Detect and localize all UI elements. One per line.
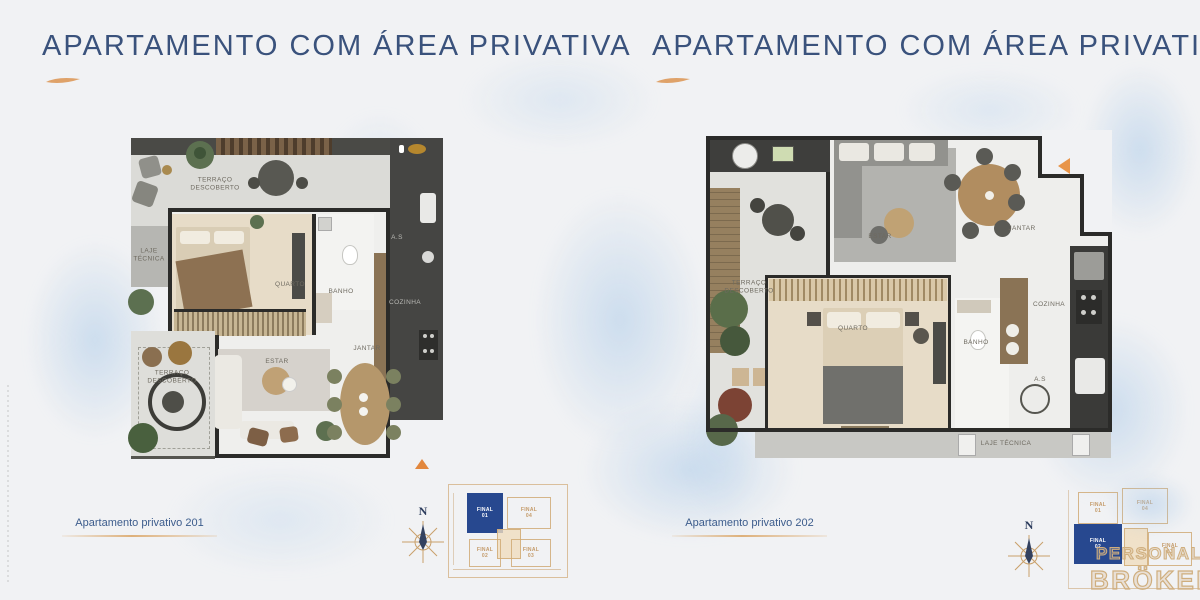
dining-chair [976,148,993,165]
fridge [1074,252,1104,280]
title-swoosh-icon [44,76,82,85]
sink [422,251,434,263]
keyplan-unit-label: FINAL 01 [467,507,503,520]
dining-chair [944,174,961,191]
brochure-page: APARTAMENTO COM ÁREA PRIVATIVA APARTAMEN… [0,0,1200,600]
room-label-terraco-top: TERRAÇO DESCOBERTO [190,177,239,194]
wall [168,208,390,212]
washer [732,143,758,169]
vanity [316,293,332,323]
dining-chair [327,397,342,412]
floorplan-202: ESTAR JANTAR TERRAÇO DESCOBERTO QUARTO B… [706,130,1112,476]
room-label-as: A.S [1034,376,1046,384]
hanging-chair-seat [162,391,184,413]
pillow [214,231,244,244]
wall [706,136,710,432]
keyplan-unit-label: FINAL 02 [470,547,500,560]
room-label-terraco-bottom: TERRAÇO DESCOBERTO [147,370,196,387]
burner [430,334,434,338]
keyplan-left: FINAL 01 FINAL 04 FINAL 02 FINAL 03 [448,484,568,578]
notch [1042,130,1112,174]
terrace-chair [750,198,765,213]
plan-marker-arrow [1058,158,1070,174]
plant [194,147,206,159]
burner [1091,295,1096,300]
oven [1075,358,1105,394]
keyplan-street-line [453,493,454,565]
door-mat [732,368,749,386]
nightstand [807,312,821,326]
dining-chair [962,222,979,239]
logo-line-broker: BRÖKER [1090,565,1200,596]
compass-north-label: N [400,504,446,519]
dining-chair [386,397,401,412]
keyplan-unit-final02: FINAL 02 [469,539,501,567]
wall [710,136,1042,140]
terrace-chair [790,226,805,241]
burner [1081,310,1086,315]
stove [1076,290,1102,324]
dining-table [340,363,390,445]
caption-underline [672,535,827,537]
stairs [216,138,332,155]
plant [720,326,750,356]
watercolor-blob [1090,462,1200,546]
wall-frame [772,146,794,162]
burner [1091,310,1096,315]
pouf [142,347,162,367]
plant [128,423,158,453]
compass-left: N [400,504,446,570]
fridge [420,193,436,223]
edge-watermark [7,382,9,582]
stove [419,330,438,360]
burner [430,349,434,353]
keyplan-street-line [453,569,561,570]
dining-chair [1008,194,1025,211]
room-label-jantar: JANTAR [1008,225,1035,233]
cushion [874,143,904,161]
plate [985,191,994,200]
compass-rose-icon [400,519,446,565]
room-label-cozinha: COZINHA [1033,301,1065,309]
pillow [180,231,210,244]
room-label-cozinha: COZINHA [389,299,421,307]
page-title-right: APARTAMENTO COM ÁREA PRIVATIVA [652,30,1200,63]
service-wall [710,138,830,172]
terrace-edge [131,456,215,459]
pillow [866,312,900,328]
bed-blanket [823,366,903,424]
room-label-laje: LAJE TÉCNICA [133,248,164,265]
personal-broker-logo: PERSONAL BRÖKER [1090,544,1200,596]
room-label-jantar: JANTAR [353,345,380,353]
plan-marker-triangle [415,459,429,469]
terrace-table [258,160,294,196]
keyplan-unit-final03: FINAL 03 [511,539,551,567]
plate [359,393,368,402]
wall [168,208,172,339]
sofa [214,355,242,429]
room-label-banho: BANHO [963,339,988,347]
keyplan-unit-label: FINAL 03 [512,547,550,560]
vent [958,434,976,456]
room-label-estar: ESTAR [265,358,288,366]
dining-chair [386,425,401,440]
chair [913,328,929,344]
armchair [279,426,299,443]
wall [826,172,830,280]
plant [250,215,264,229]
plate [359,407,368,416]
page-title-left: APARTAMENTO COM ÁREA PRIVATIVA [42,30,632,63]
plant [128,289,154,315]
pouf [168,341,192,365]
cushion [839,143,869,161]
shower [318,217,332,231]
wall [1038,136,1042,178]
room-label-banho: BANHO [328,288,353,296]
burner [1081,295,1086,300]
cushion [909,143,935,161]
sink [1006,324,1019,337]
notch [1084,174,1112,232]
dining-chair [327,369,342,384]
terrace-chair [296,177,308,189]
terrace-chair [248,177,260,189]
room-label-quarto: QUARTO [275,281,305,289]
nightstand [905,312,919,326]
wall [215,454,390,458]
dining-chair [1004,164,1021,181]
vent [1072,434,1090,456]
burner [423,349,427,353]
compass-right: N [1006,518,1052,584]
keyplan-unit-final01-highlighted: FINAL 01 [467,493,503,533]
sink [1006,342,1019,355]
dining-chair [327,425,342,440]
unit-entry-badge [408,144,426,154]
keyplan-street-line [1068,490,1069,588]
caption-underline [62,535,217,537]
caption-unit-202: Apartamento privativo 202 [672,517,827,529]
room-label-estar: ESTAR [868,233,891,241]
room-label-as: A.S [391,234,403,242]
wall [1038,174,1084,178]
toilet [342,245,358,265]
wall [1080,174,1084,236]
wall [710,428,1112,432]
dining-chair [386,369,401,384]
terrace-pouf [162,165,172,175]
entry-icon [399,145,404,153]
side-table [282,377,297,392]
compass-rose-icon [1006,533,1052,579]
dresser [933,322,946,384]
logo-line-personal: PERSONAL [1096,544,1200,564]
wall [1108,232,1112,432]
washer [1020,384,1050,414]
room-label-terraco: TERRAÇO DESCOBERTO [724,280,773,297]
laje-tecnica-strip [755,430,1111,458]
room-label-quarto: QUARTO [838,325,868,333]
keyplan-unit-label: FINAL 04 [508,507,550,520]
title-swoosh-icon [654,76,692,85]
caption-unit-201: Apartamento privativo 201 [62,517,217,529]
burner [423,334,427,338]
room-label-laje: LAJE TÉCNICA [981,440,1032,448]
compass-north-label: N [1006,518,1052,533]
vanity [957,300,991,313]
keyplan-unit-final04: FINAL 04 [507,497,551,529]
floorplan-201: TERRAÇO DESCOBERTO LAJE TÉCNICA QUARTO B… [128,135,446,471]
closet [769,279,947,301]
